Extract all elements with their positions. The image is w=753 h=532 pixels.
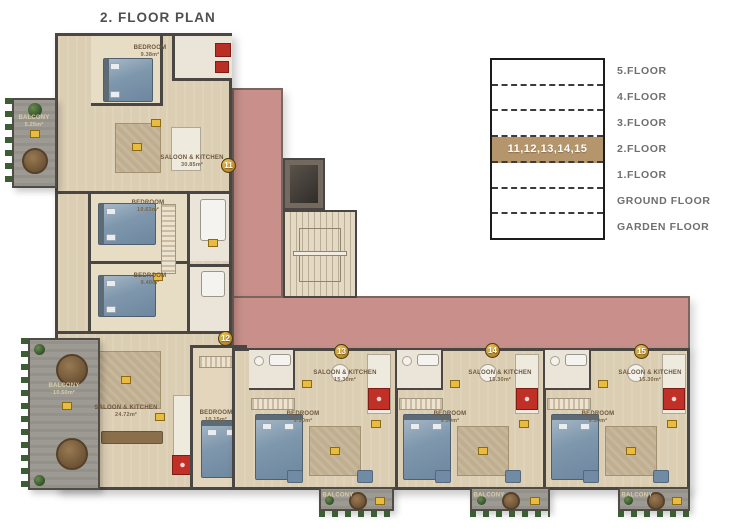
armchair [653, 470, 669, 483]
legend-label-5floor: 5.FLOOR [617, 58, 711, 84]
sofa [101, 431, 163, 444]
door-marker [598, 380, 608, 388]
door-marker [519, 420, 529, 428]
legend-label-ground: GROUND FLOOR [617, 188, 711, 214]
room-label-u11-bedroom: BEDROOM 9.38m² [134, 45, 167, 59]
wall-u12-saloon [58, 331, 229, 334]
legend-row-ground [492, 189, 603, 215]
floor-stack-diagram: 11,12,13,14,15 [490, 58, 605, 240]
door-marker [530, 497, 540, 505]
bathtub [565, 354, 587, 366]
planter-hedge [470, 511, 550, 517]
unit-15-bathroom [545, 350, 591, 390]
coffee-table [121, 376, 131, 384]
unit-14-bathroom [397, 350, 443, 390]
armchair [435, 470, 451, 483]
coffee-table [330, 447, 340, 455]
room-label-u15-balcony: BALCONY [621, 493, 652, 500]
room-label-u12-bedroom2: BEDROOM 9.40m² [134, 273, 167, 287]
planter-hedge [618, 511, 690, 517]
legend-label-1floor: 1.FLOOR [617, 162, 711, 188]
door-marker [30, 130, 40, 138]
legend-label-3floor: 3.FLOOR [617, 110, 711, 136]
pillow [558, 423, 568, 430]
pillow [106, 234, 116, 241]
elevator-shaft [283, 158, 325, 210]
stove [368, 388, 390, 410]
washer [215, 43, 231, 57]
coffee-table [132, 143, 142, 151]
room-label-u12-balcony: BALCONY 10.50m² [48, 383, 79, 397]
pillow [106, 306, 116, 313]
planter-hedge [319, 511, 394, 517]
floor-plan-page: 2. FLOOR PLAN 11,12,13,14,15 5.FLOOR 4.F… [0, 0, 753, 532]
door-marker [375, 497, 385, 505]
legend-row-3floor [492, 111, 603, 137]
wardrobe [161, 204, 176, 274]
coffee-table [478, 447, 488, 455]
room-label-u13-bedroom: BEDROOM 9.50m² [287, 411, 320, 425]
room-label-u11-saloon: SALOON & KITCHEN 30.85m² [160, 155, 223, 169]
legend-row-4floor [492, 86, 603, 112]
page-title: 2. FLOOR PLAN [100, 10, 216, 25]
staircase [283, 210, 357, 298]
legend-row-garden [492, 214, 603, 238]
door-marker [302, 380, 312, 388]
pillow [207, 429, 217, 436]
highlighted-units-text: 11,12,13,14,15 [508, 143, 588, 155]
bed-headboard [99, 204, 104, 244]
floor-legend-labels: 5.FLOOR 4.FLOOR 3.FLOOR 2.FLOOR 1.FLOOR … [617, 58, 711, 240]
unit-11-badge: 11 [221, 158, 236, 173]
elevator-cabin [290, 165, 318, 203]
tree [34, 344, 45, 355]
door-marker [62, 402, 72, 410]
planter-hedge [21, 338, 28, 490]
balcony-table [56, 438, 88, 470]
bed-headboard [99, 276, 104, 316]
unit-12-badge: 12 [218, 331, 233, 346]
unit-13-badge: 13 [334, 344, 349, 359]
room-label-u13-balcony: BALCONY [322, 493, 353, 500]
bed [103, 58, 153, 102]
stair-landing [293, 251, 347, 256]
room-label-u11-balcony: BALCONY 5.25m² [18, 115, 49, 129]
tree [34, 475, 45, 486]
coffee-table [626, 447, 636, 455]
room-label-u15-bedroom: BEDROOM 9.50m² [582, 411, 615, 425]
pillow [106, 280, 116, 287]
room-label-u13-saloon: SALOON & KITCHEN 15.30m² [313, 370, 376, 384]
bathtub [269, 354, 291, 366]
bed-headboard [104, 59, 109, 101]
room-label-u12-bedroom1: BEDROOM 10.63m² [132, 200, 165, 214]
shower [201, 271, 225, 297]
stove [663, 388, 685, 410]
terrace-roof-vertical [232, 88, 283, 298]
legend-row-1floor [492, 163, 603, 189]
unit-11-balcony [12, 98, 57, 188]
bathtub [200, 199, 226, 241]
balcony-table [22, 148, 48, 174]
legend-label-garden: GARDEN FLOOR [617, 214, 711, 240]
planter-hedge [5, 98, 12, 188]
stove [516, 388, 538, 410]
pillow [110, 63, 120, 70]
kitchen-appliance [215, 61, 229, 73]
armchair [357, 470, 373, 483]
door-marker [371, 420, 381, 428]
unit-13-bathroom [249, 350, 295, 390]
wardrobe [399, 398, 443, 410]
unit-12-balcony [28, 338, 100, 490]
balcony-table [56, 354, 88, 386]
room-label-u12-bedroom3: BEDROOM 10.15m² [200, 410, 233, 424]
room-label-u12-saloon: SALOON & KITCHEN 24.72m² [94, 405, 157, 419]
armchair [583, 470, 599, 483]
legend-label-2floor: 2.FLOOR [617, 136, 711, 162]
pillow [110, 91, 120, 98]
legend-row-2floor-highlight: 11,12,13,14,15 [492, 137, 603, 163]
door-marker [208, 239, 218, 247]
pillow [410, 423, 420, 430]
pillow [262, 423, 272, 430]
pillow [106, 208, 116, 215]
armchair [287, 470, 303, 483]
bathtub [417, 354, 439, 366]
armchair [505, 470, 521, 483]
unit-14-badge: 14 [485, 343, 500, 358]
legend-row-5floor [492, 60, 603, 86]
room-label-u14-bedroom: BEDROOM 9.50m² [434, 411, 467, 425]
legend-label-4floor: 4.FLOOR [617, 84, 711, 110]
room-label-u14-saloon: SALOON & KITCHEN 15.30m² [468, 370, 531, 384]
sink [254, 356, 264, 366]
terrace-roof-horizontal [232, 296, 690, 350]
door-marker [667, 420, 677, 428]
door-marker [151, 119, 161, 127]
door-marker [450, 380, 460, 388]
sink [550, 356, 560, 366]
sink [402, 356, 412, 366]
unit-15-badge: 15 [634, 344, 649, 359]
room-label-u14-balcony: BALCONY [473, 493, 504, 500]
door-marker [672, 497, 682, 505]
room-label-u15-saloon: SALOON & KITCHEN 15.30m² [618, 370, 681, 384]
wardrobe [547, 398, 591, 410]
wardrobe [251, 398, 295, 410]
balcony-table [502, 492, 520, 510]
